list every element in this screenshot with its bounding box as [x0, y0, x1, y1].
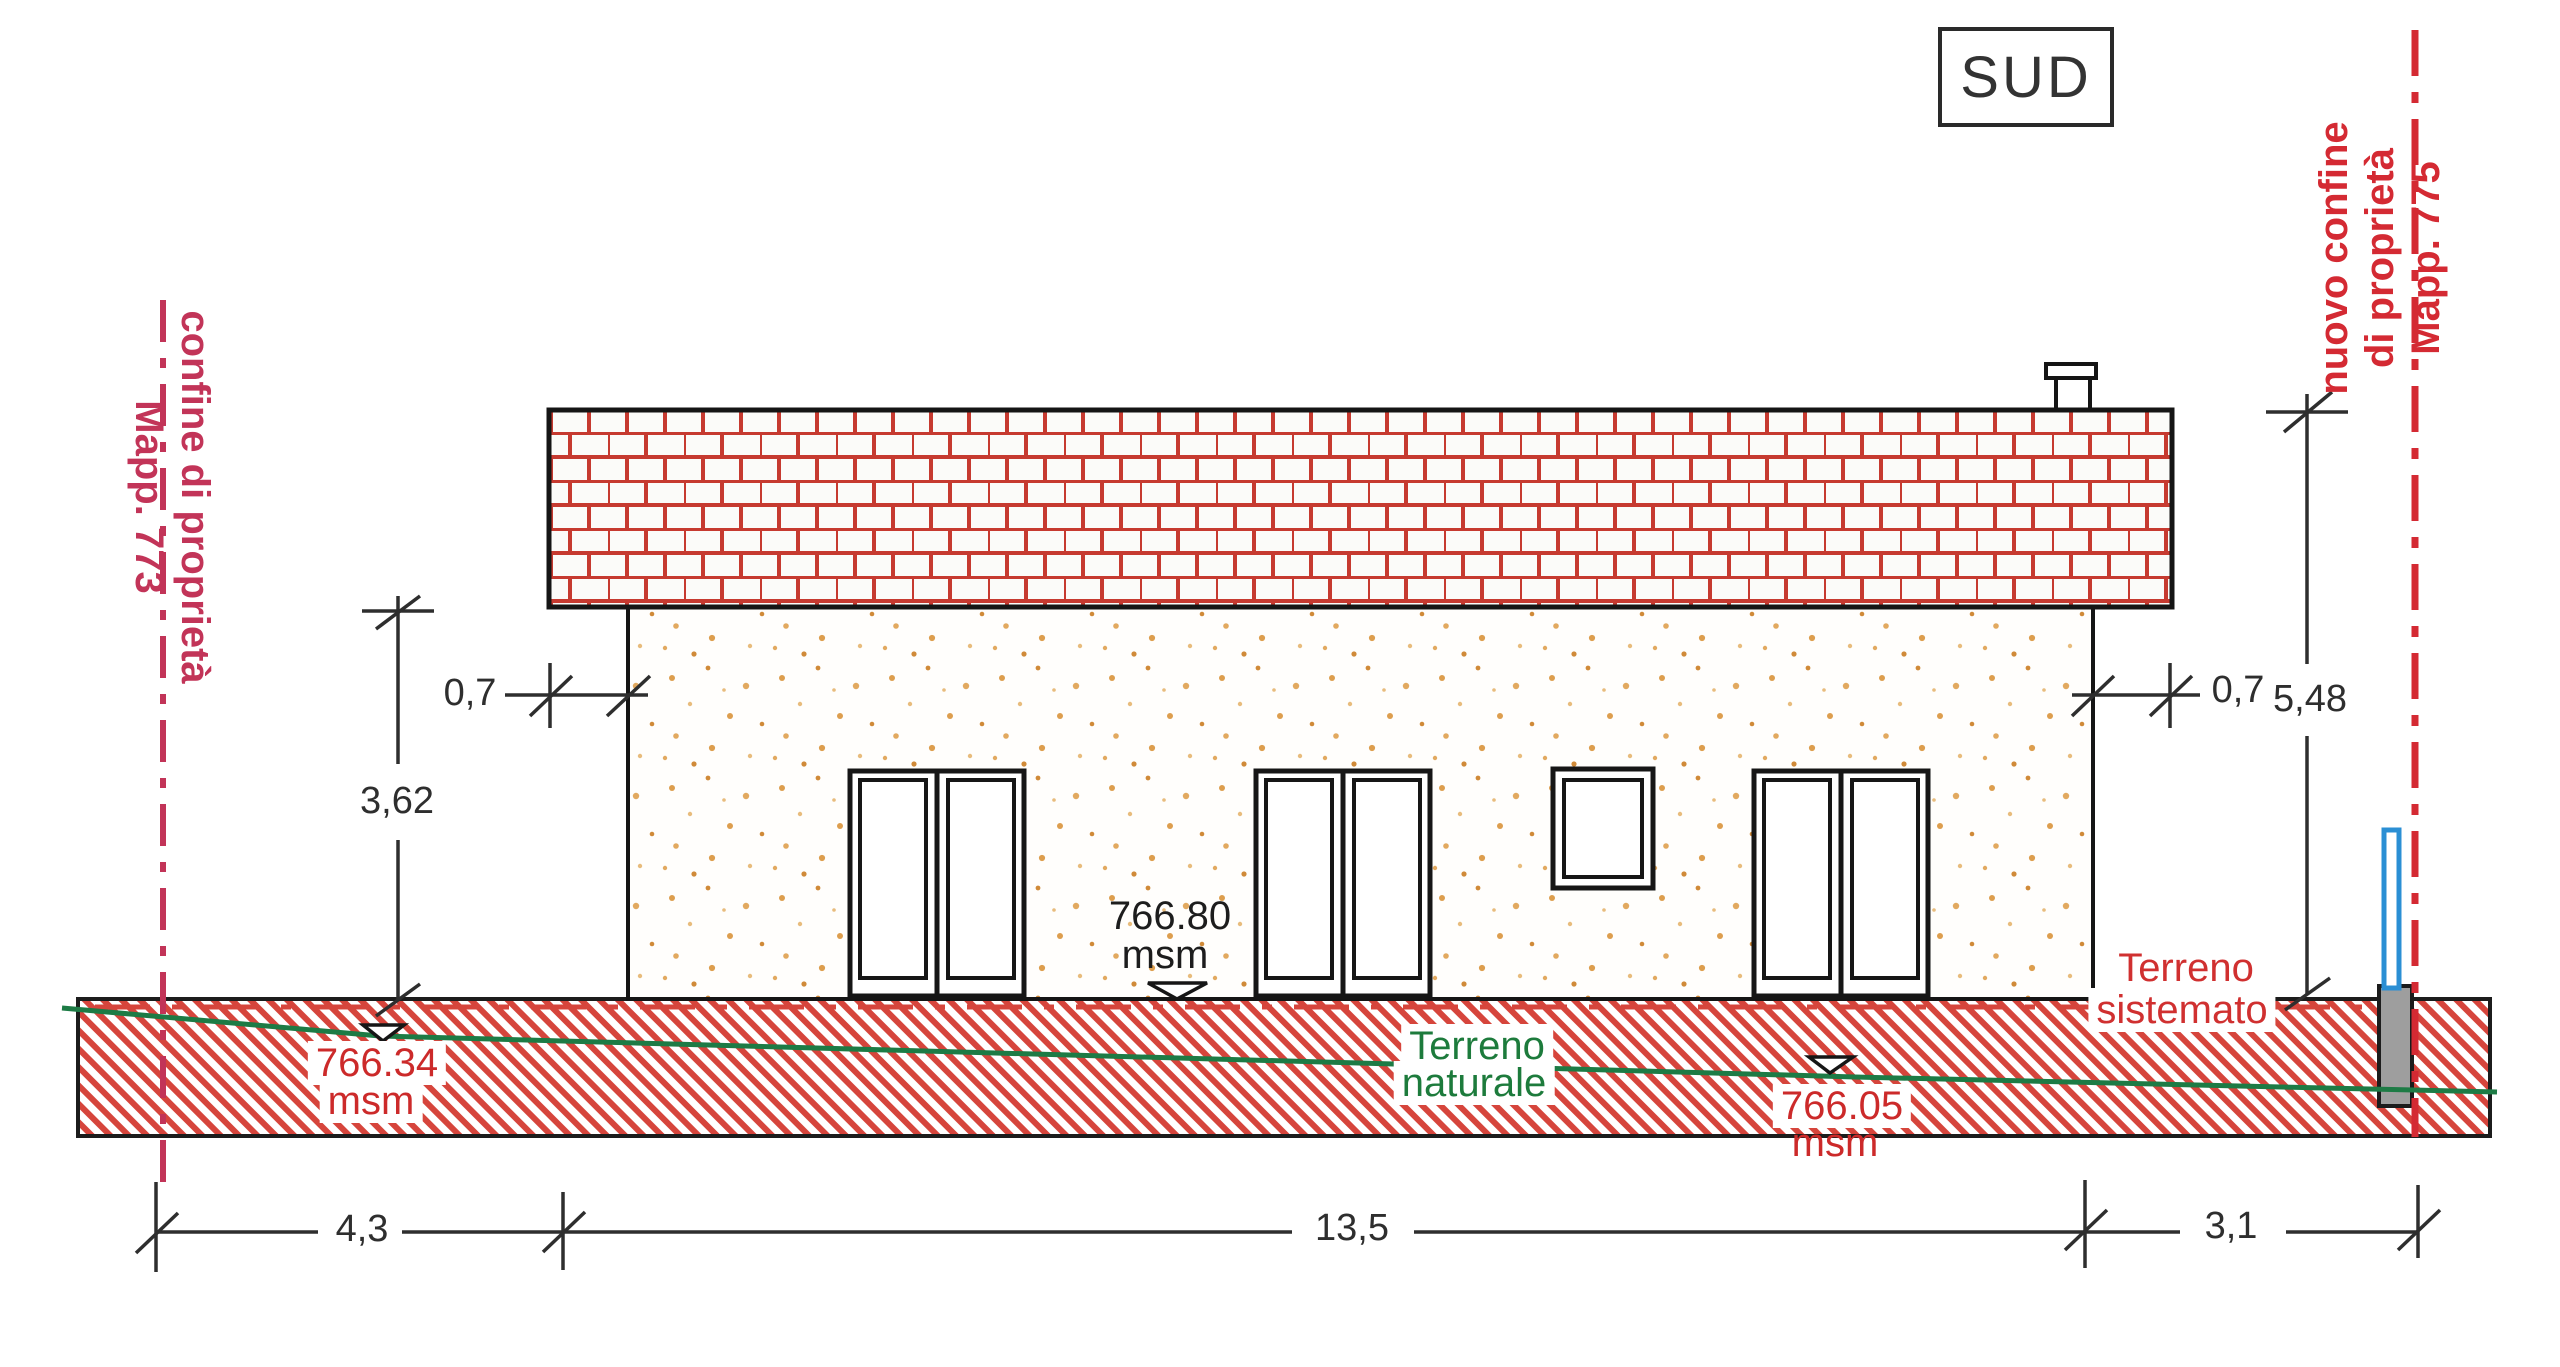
elevation-drawing-south: SUD confine di proprietà Mapp. 773 nuovo… [0, 0, 2560, 1367]
orientation-title-box: SUD [1938, 27, 2114, 127]
roof-band [549, 410, 2172, 607]
french-door-2 [1256, 771, 1430, 996]
boundary-right-parcel: Mapp. 775 [2403, 121, 2449, 394]
boundary-right-name-2: di proprietà [2357, 121, 2403, 394]
chimney-cap [2046, 364, 2096, 378]
dim-building-length: 13,5 [1315, 1209, 1389, 1249]
dim-total-height: 5,48 [2273, 680, 2347, 720]
blue-post [2384, 830, 2399, 988]
arranged-terrain-label-1: Terreno [2118, 947, 2254, 989]
dim-eave-right: 0,7 [2212, 671, 2265, 711]
drawing-linework [0, 0, 2560, 1367]
dim-right-setback: 3,1 [2205, 1207, 2258, 1247]
boundary-label-left: confine di proprietà Mapp. 773 [126, 310, 218, 683]
french-door-1 [850, 771, 1024, 996]
french-door-3 [1754, 771, 1928, 996]
boundary-label-right: nuovo confine di proprietà Mapp. 775 [2311, 121, 2449, 394]
boundary-left-name: confine di proprietà [172, 310, 218, 683]
dim-left-setback: 4,3 [336, 1210, 389, 1250]
level-terrain-mid-unit: msm [1792, 1122, 1879, 1164]
arranged-terrain-label-2: sistemato [2088, 988, 2275, 1032]
orientation-title: SUD [1960, 44, 2091, 111]
natural-terrain-label-2: naturale [1394, 1061, 1555, 1105]
building [549, 364, 2172, 999]
boundary-left-parcel: Mapp. 773 [126, 310, 172, 683]
level-floor-value: 766.80 [1109, 895, 1231, 937]
boundary-right-name-1: nuovo confine [2311, 121, 2357, 394]
level-floor-unit: msm [1122, 934, 1209, 976]
level-terrain-left-unit: msm [320, 1079, 423, 1123]
small-window [1553, 769, 1653, 888]
dim-wall-height: 3,62 [360, 782, 434, 822]
chimney-body [2056, 378, 2090, 411]
dim-eave-left: 0,7 [444, 674, 497, 714]
boundary-marker-post [2379, 830, 2412, 1106]
